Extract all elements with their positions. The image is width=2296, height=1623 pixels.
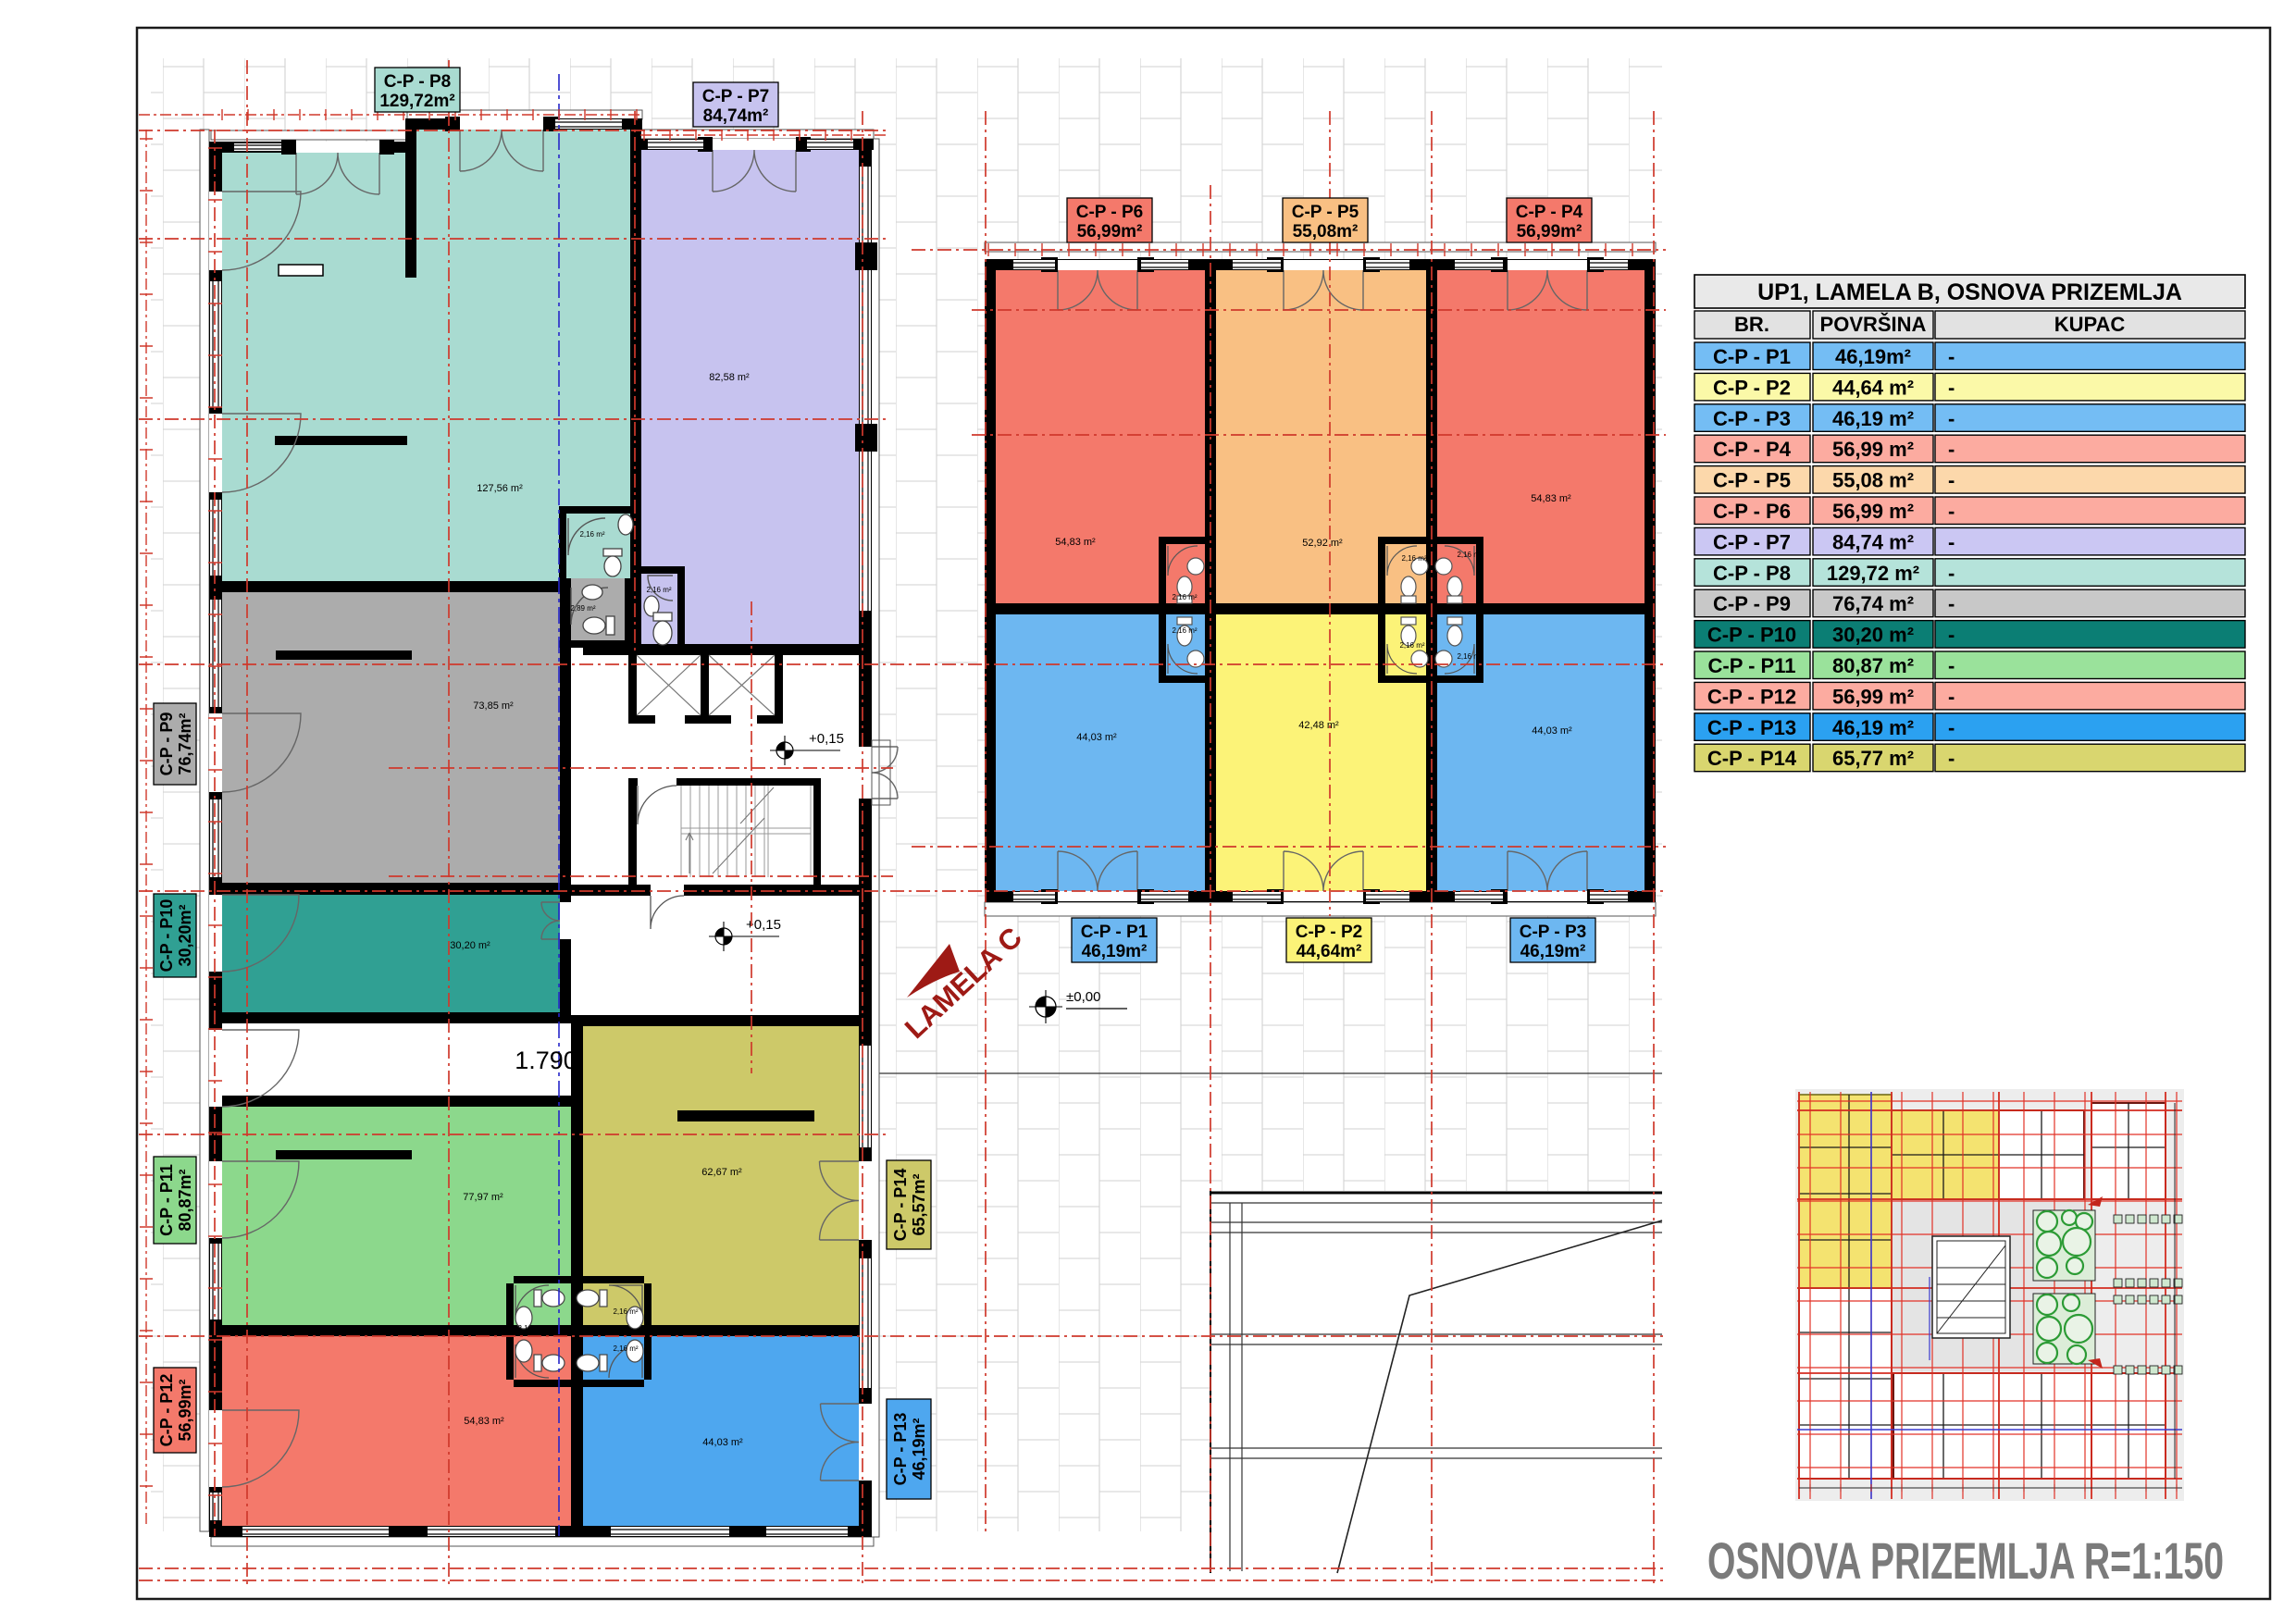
svg-text:2,16 m²: 2,16 m² bbox=[1399, 641, 1424, 650]
svg-text:2,16 m²: 2,16 m² bbox=[1401, 554, 1426, 563]
svg-text:46,19m²: 46,19m² bbox=[910, 1418, 928, 1480]
svg-text:129,72m²: 129,72m² bbox=[379, 92, 454, 111]
svg-text:C-P - P2: C-P - P2 bbox=[1713, 376, 1791, 399]
svg-text:30,20 m²: 30,20 m² bbox=[450, 940, 490, 951]
svg-text:C-P - P10: C-P - P10 bbox=[157, 899, 176, 973]
svg-text:84,74 m²: 84,74 m² bbox=[1832, 530, 1914, 553]
svg-text:2,16 m²: 2,16 m² bbox=[613, 1307, 638, 1316]
svg-text:2,16 m²: 2,16 m² bbox=[579, 530, 604, 539]
svg-text:-: - bbox=[1948, 685, 1955, 708]
svg-text:56,99m²: 56,99m² bbox=[1077, 222, 1143, 242]
svg-text:55,08m²: 55,08m² bbox=[1293, 222, 1359, 242]
svg-text:OSNOVA PRIZEMLJA R=1:150: OSNOVA PRIZEMLJA R=1:150 bbox=[1707, 1531, 2224, 1590]
svg-text:C-P - P9: C-P - P9 bbox=[157, 712, 176, 776]
svg-text:-: - bbox=[1948, 500, 1955, 523]
svg-text:C-P - P8: C-P - P8 bbox=[1713, 562, 1791, 585]
svg-text:BR.: BR. bbox=[1734, 313, 1769, 336]
svg-text:44,64 m²: 44,64 m² bbox=[1832, 376, 1914, 399]
svg-text:46,19m²: 46,19m² bbox=[1520, 942, 1586, 961]
svg-text:C-P - P13: C-P - P13 bbox=[1707, 716, 1796, 739]
svg-text:54,83 m²: 54,83 m² bbox=[1531, 493, 1571, 504]
svg-text:C-P - P13: C-P - P13 bbox=[891, 1413, 910, 1486]
svg-text:56,99 m²: 56,99 m² bbox=[1832, 685, 1914, 708]
svg-text:C-P - P2: C-P - P2 bbox=[1296, 923, 1363, 942]
svg-text:C-P - P6: C-P - P6 bbox=[1076, 203, 1144, 222]
svg-text:C-P - P12: C-P - P12 bbox=[157, 1374, 176, 1447]
svg-text:-: - bbox=[1948, 438, 1955, 461]
svg-text:82,58 m²: 82,58 m² bbox=[709, 372, 750, 383]
svg-text:C-P - P9: C-P - P9 bbox=[1713, 592, 1791, 615]
svg-text:129,72 m²: 129,72 m² bbox=[1827, 562, 1919, 585]
svg-text:46,19 m²: 46,19 m² bbox=[1832, 407, 1914, 430]
svg-text:±0,00: ±0,00 bbox=[1066, 989, 1100, 1005]
svg-text:44,03 m²: 44,03 m² bbox=[1076, 732, 1117, 743]
svg-text:C-P - P3: C-P - P3 bbox=[1520, 923, 1587, 942]
svg-text:2,16 m²: 2,16 m² bbox=[613, 1344, 638, 1353]
svg-text:-: - bbox=[1948, 345, 1955, 368]
svg-text:2,16 m²: 2,16 m² bbox=[1457, 652, 1482, 661]
svg-text:-: - bbox=[1948, 716, 1955, 739]
svg-text:80,87m²: 80,87m² bbox=[176, 1169, 194, 1231]
svg-text:2,16 m²: 2,16 m² bbox=[646, 586, 671, 594]
svg-text:54,83 m²: 54,83 m² bbox=[1055, 537, 1096, 548]
svg-text:C-P - P7: C-P - P7 bbox=[702, 87, 770, 106]
svg-text:C-P - P14: C-P - P14 bbox=[1707, 747, 1797, 770]
svg-text:56,99 m²: 56,99 m² bbox=[1832, 500, 1914, 523]
svg-text:C-P - P5: C-P - P5 bbox=[1292, 203, 1359, 222]
svg-text:-: - bbox=[1948, 530, 1955, 553]
svg-text:52,92 m²: 52,92 m² bbox=[1302, 538, 1343, 549]
svg-text:-: - bbox=[1948, 469, 1955, 492]
svg-text:-: - bbox=[1948, 562, 1955, 585]
svg-text:55,08 m²: 55,08 m² bbox=[1832, 469, 1914, 492]
svg-text:-: - bbox=[1948, 624, 1955, 647]
svg-text:44,03 m²: 44,03 m² bbox=[702, 1437, 743, 1448]
svg-text:30,20 m²: 30,20 m² bbox=[1832, 624, 1914, 647]
svg-text:C-P - P12: C-P - P12 bbox=[1707, 685, 1796, 708]
svg-text:46,19 m²: 46,19 m² bbox=[1832, 716, 1914, 739]
svg-text:POVRŠINA: POVRŠINA bbox=[1820, 313, 1927, 336]
svg-text:73,85 m²: 73,85 m² bbox=[473, 700, 514, 712]
svg-text:127,56 m²: 127,56 m² bbox=[477, 483, 523, 494]
svg-text:C-P - P1: C-P - P1 bbox=[1081, 923, 1148, 942]
svg-text:C-P - P6: C-P - P6 bbox=[1713, 500, 1791, 523]
svg-text:42,48 m²: 42,48 m² bbox=[1298, 720, 1339, 731]
svg-text:-: - bbox=[1948, 407, 1955, 430]
svg-text:C-P - P4: C-P - P4 bbox=[1516, 203, 1583, 222]
svg-text:76,74m²: 76,74m² bbox=[176, 712, 194, 774]
svg-text:C-P - P10: C-P - P10 bbox=[1707, 624, 1796, 647]
svg-text:65,57m²: 65,57m² bbox=[910, 1173, 928, 1235]
svg-text:KUPAC: KUPAC bbox=[2054, 313, 2126, 336]
svg-text:C-P - P3: C-P - P3 bbox=[1713, 407, 1791, 430]
svg-text:62,67 m²: 62,67 m² bbox=[701, 1167, 742, 1178]
svg-text:C-P - P5: C-P - P5 bbox=[1713, 469, 1791, 492]
svg-text:-: - bbox=[1948, 592, 1955, 615]
svg-text:46,19m²: 46,19m² bbox=[1082, 942, 1148, 961]
svg-text:UP1, LAMELA B, OSNOVA PRIZEMLJ: UP1, LAMELA B, OSNOVA PRIZEMLJA bbox=[1757, 279, 2182, 305]
svg-text:54,83 m²: 54,83 m² bbox=[464, 1416, 504, 1427]
svg-text:76,74 m²: 76,74 m² bbox=[1832, 592, 1914, 615]
svg-text:+0,15: +0,15 bbox=[809, 731, 844, 747]
svg-text:30,20m²: 30,20m² bbox=[176, 904, 194, 966]
svg-text:56,99m²: 56,99m² bbox=[176, 1379, 194, 1441]
svg-text:C-P - P4: C-P - P4 bbox=[1713, 438, 1792, 461]
svg-text:56,99 m²: 56,99 m² bbox=[1832, 438, 1914, 461]
svg-text:C-P - P8: C-P - P8 bbox=[384, 72, 452, 92]
svg-text:C-P - P11: C-P - P11 bbox=[157, 1164, 176, 1236]
svg-text:46,19m²: 46,19m² bbox=[1835, 345, 1911, 368]
svg-text:C-P - P7: C-P - P7 bbox=[1713, 530, 1791, 553]
svg-text:2,16 m²: 2,16 m² bbox=[517, 1324, 542, 1332]
svg-text:56,99m²: 56,99m² bbox=[1517, 222, 1582, 242]
svg-text:80,87 m²: 80,87 m² bbox=[1832, 654, 1914, 677]
svg-text:2,16 m²: 2,16 m² bbox=[1172, 626, 1197, 635]
svg-text:2,16 m²: 2,16 m² bbox=[1457, 551, 1482, 559]
svg-text:84,74m²: 84,74m² bbox=[703, 106, 769, 126]
svg-text:44,64m²: 44,64m² bbox=[1297, 942, 1362, 961]
svg-text:2,16 m²: 2,16 m² bbox=[1172, 593, 1197, 601]
svg-text:2,89 m²: 2,89 m² bbox=[570, 604, 595, 613]
svg-text:65,77 m²: 65,77 m² bbox=[1832, 747, 1914, 770]
svg-text:1.790: 1.790 bbox=[515, 1047, 577, 1074]
svg-text:-: - bbox=[1948, 747, 1955, 770]
svg-text:C-P - P11: C-P - P11 bbox=[1708, 654, 1796, 677]
svg-text:C-P - P14: C-P - P14 bbox=[891, 1169, 910, 1242]
svg-text:-: - bbox=[1948, 654, 1955, 677]
svg-text:44,03 m²: 44,03 m² bbox=[1532, 725, 1572, 737]
svg-text:77,97 m²: 77,97 m² bbox=[463, 1192, 503, 1203]
svg-text:C-P - P1: C-P - P1 bbox=[1713, 345, 1791, 368]
svg-text:-: - bbox=[1948, 376, 1955, 399]
